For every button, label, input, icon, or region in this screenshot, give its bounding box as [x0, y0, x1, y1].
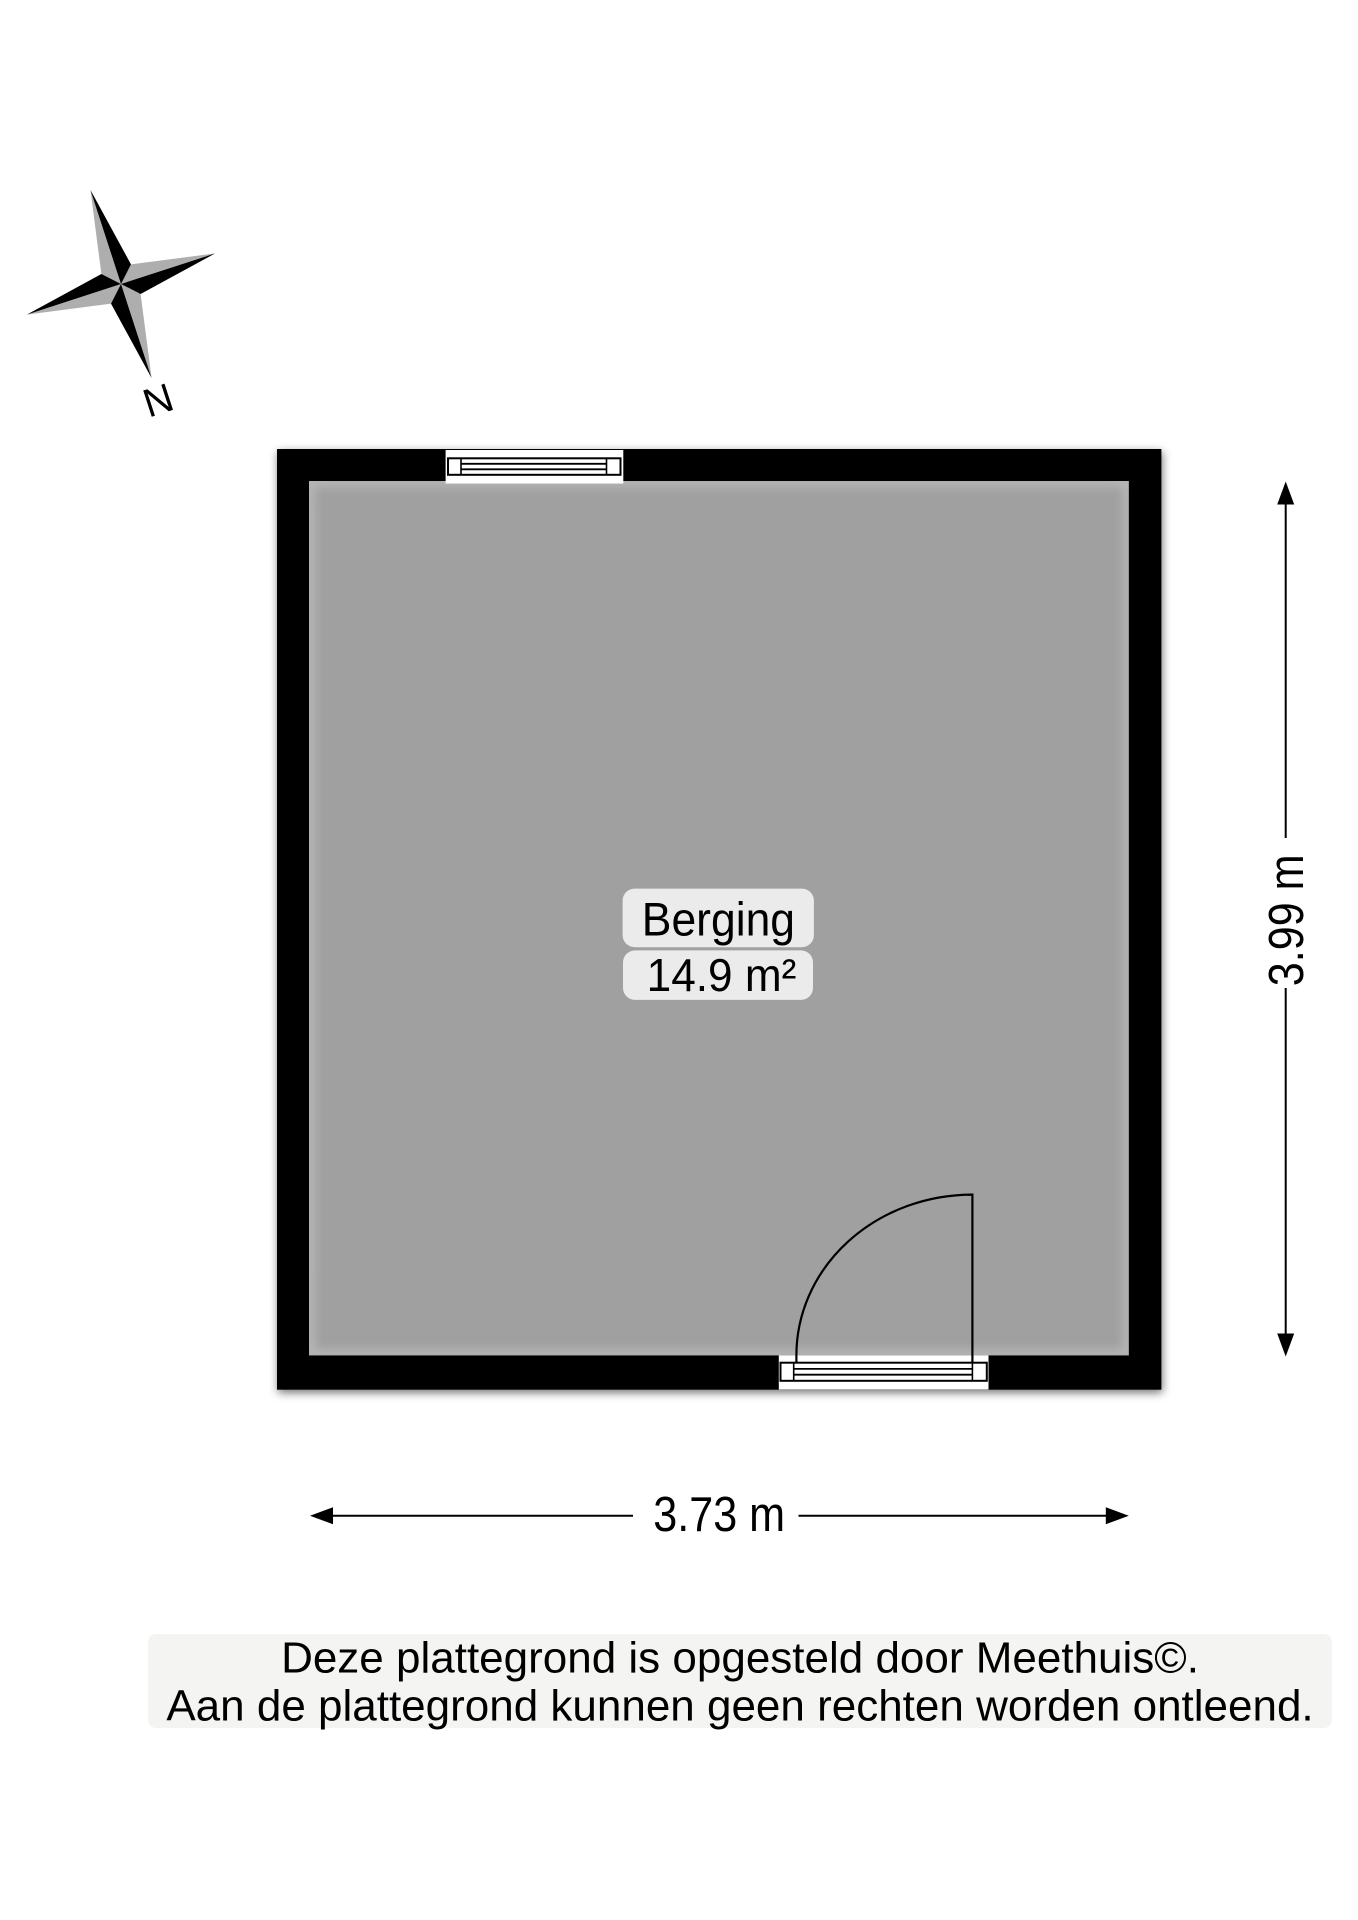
- svg-text:Berging: Berging: [642, 894, 795, 946]
- svg-text:3.99 m: 3.99 m: [1258, 854, 1313, 986]
- svg-text:Aan de plattegrond kunnen geen: Aan de plattegrond kunnen geen rechten w…: [166, 1682, 1313, 1731]
- svg-text:14.9 m²: 14.9 m²: [647, 949, 797, 1001]
- svg-text:N: N: [138, 376, 179, 427]
- svg-text:Deze plattegrond is opgesteld: Deze plattegrond is opgesteld door Meeth…: [281, 1633, 1199, 1682]
- svg-text:3.73 m: 3.73 m: [653, 1486, 785, 1541]
